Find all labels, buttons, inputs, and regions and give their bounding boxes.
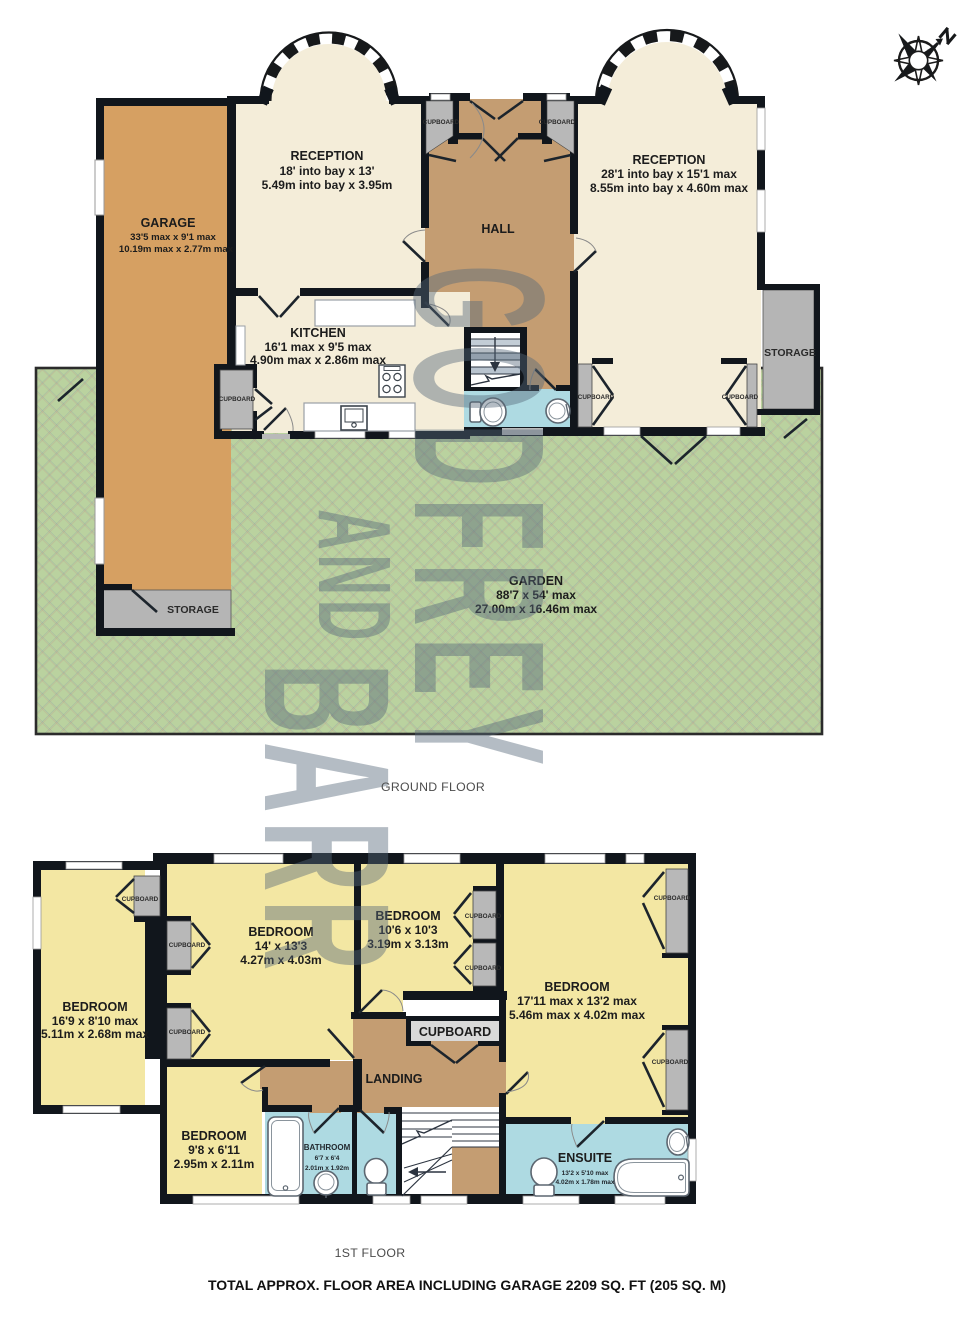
svg-text:13'2 x 5'10 max: 13'2 x 5'10 max (562, 1170, 609, 1177)
svg-text:KITCHEN: KITCHEN (290, 326, 346, 340)
svg-text:RECEPTION: RECEPTION (633, 153, 706, 167)
svg-text:BEDROOM: BEDROOM (544, 980, 609, 994)
svg-text:CUPBOARD: CUPBOARD (423, 119, 460, 126)
svg-text:CUPBOARD: CUPBOARD (419, 1025, 491, 1039)
svg-text:9'8 x 6'11: 9'8 x 6'11 (188, 1143, 240, 1157)
svg-text:CUPBOARD: CUPBOARD (122, 896, 159, 903)
svg-text:16'1 max x 9'5 max: 16'1 max x 9'5 max (264, 340, 371, 354)
svg-text:LANDING: LANDING (366, 1072, 423, 1086)
svg-text:18' into bay x 13': 18' into bay x 13' (279, 164, 374, 178)
svg-text:GARAGE: GARAGE (141, 216, 196, 230)
svg-text:16'9 x 8'10 max: 16'9 x 8'10 max (52, 1014, 139, 1028)
svg-text:2.95m x 2.11m: 2.95m x 2.11m (174, 1157, 255, 1171)
svg-text:4.02m x 1.78m max: 4.02m x 1.78m max (556, 1179, 615, 1186)
svg-text:8.55m into bay x 4.60m max: 8.55m into bay x 4.60m max (590, 181, 748, 195)
svg-text:TOTAL APPROX. FLOOR AREA INCLU: TOTAL APPROX. FLOOR AREA INCLUDING GARAG… (208, 1277, 726, 1293)
svg-text:28'1 into bay x 15'1 max: 28'1 into bay x 15'1 max (601, 167, 737, 181)
svg-text:STORAGE: STORAGE (764, 347, 816, 359)
svg-text:CUPBOARD: CUPBOARD (652, 1059, 689, 1066)
svg-text:CUPBOARD: CUPBOARD (539, 119, 576, 126)
svg-text:RECEPTION: RECEPTION (291, 149, 364, 163)
svg-text:6'7 x 6'4: 6'7 x 6'4 (315, 1155, 340, 1162)
svg-text:CUPBOARD: CUPBOARD (722, 394, 759, 401)
svg-text:HALL: HALL (481, 222, 515, 236)
svg-text:CUPBOARD: CUPBOARD (654, 895, 691, 902)
svg-text:CUPBOARD: CUPBOARD (465, 913, 502, 920)
svg-text:BARR: BARR (227, 663, 428, 978)
svg-text:BEDROOM: BEDROOM (181, 1129, 246, 1143)
svg-text:CUPBOARD: CUPBOARD (169, 1029, 206, 1036)
svg-text:GROUND FLOOR: GROUND FLOOR (381, 780, 485, 794)
svg-text:CUPBOARD: CUPBOARD (465, 965, 502, 972)
svg-text:17'11 max x 13'2 max: 17'11 max x 13'2 max (517, 994, 637, 1008)
svg-text:STORAGE: STORAGE (167, 604, 219, 616)
svg-text:4.90m max x 2.86m max: 4.90m max x 2.86m max (250, 353, 386, 367)
svg-text:1ST FLOOR: 1ST FLOOR (335, 1246, 406, 1260)
svg-text:5.46m max x 4.02m max: 5.46m max x 4.02m max (509, 1008, 645, 1022)
svg-text:2.01m x 1.92m: 2.01m x 1.92m (305, 1165, 349, 1172)
svg-text:BEDROOM: BEDROOM (62, 1000, 127, 1014)
svg-text:ENSUITE: ENSUITE (558, 1151, 612, 1165)
svg-text:CUPBOARD: CUPBOARD (169, 942, 206, 949)
svg-text:BATHROOM: BATHROOM (304, 1143, 351, 1152)
svg-text:AND: AND (297, 509, 412, 645)
svg-text:5.49m into bay x 3.95m: 5.49m into bay x 3.95m (262, 178, 393, 192)
svg-text:10.19m max x 2.77m max: 10.19m max x 2.77m max (119, 244, 234, 255)
svg-text:33'5 max x 9'1 max: 33'5 max x 9'1 max (130, 232, 216, 243)
svg-text:5.11m x 2.68m max: 5.11m x 2.68m max (41, 1027, 149, 1041)
svg-text:CUPBOARD: CUPBOARD (219, 396, 256, 403)
